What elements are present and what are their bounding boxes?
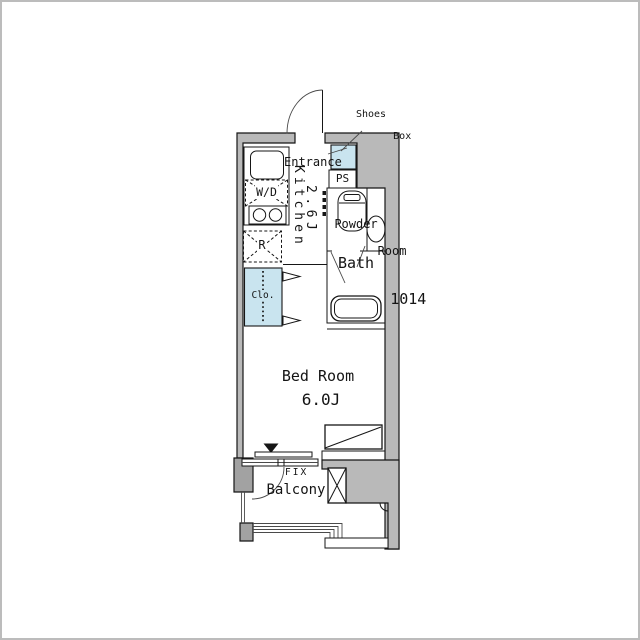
washer-dryer-text: W/D [255,185,278,199]
bedroom-size-label: 6.0J [281,391,361,409]
bath-name-text: Bath [338,254,374,272]
washer-dryer-label: W/D [246,186,288,199]
bath-label: Bath 1014 [327,254,385,308]
fix-window-label: FIX [285,468,308,479]
balcony-railing-lines [253,524,342,540]
bedroom-label: Bed Room [270,368,366,385]
window-sill-bar [255,452,312,457]
floorplan-drawing [0,0,640,640]
refrigerator-label: R [243,239,281,252]
balcony-railing-post [240,523,253,541]
stove-unit [249,206,286,224]
closet-text: Clo. [251,290,276,301]
powder-door-ticks [323,191,327,216]
balcony-slab-edge [325,538,388,548]
toilet-tank-detail [344,195,360,201]
powder-room-label: Powder Room [327,218,385,258]
powder-room-label-line1: Powder [334,217,377,231]
closet-label: Clo. [244,291,282,302]
refrigerator-text: R [257,238,266,252]
bath-size-text: 1014 [390,290,426,308]
ps-label: PS [329,173,356,185]
floorplan-canvas: Shoes Box Entrance PS Kitchen 2.6J W/D R… [0,0,640,640]
closet-door-arrow-bottom [283,316,300,325]
shoes-box-label-line1: Shoes [356,109,386,120]
entrance-door-swing-arc [287,90,323,134]
closet-door-arrow-top [283,272,300,281]
shoes-box-label: Shoes Box [351,109,391,143]
kitchen-size-label: 2.6J [302,185,317,234]
balcony-label: Balcony [260,483,332,499]
bedroom-bottom-right-edge [322,451,385,460]
shoes-box-label-line2: Box [393,131,411,142]
